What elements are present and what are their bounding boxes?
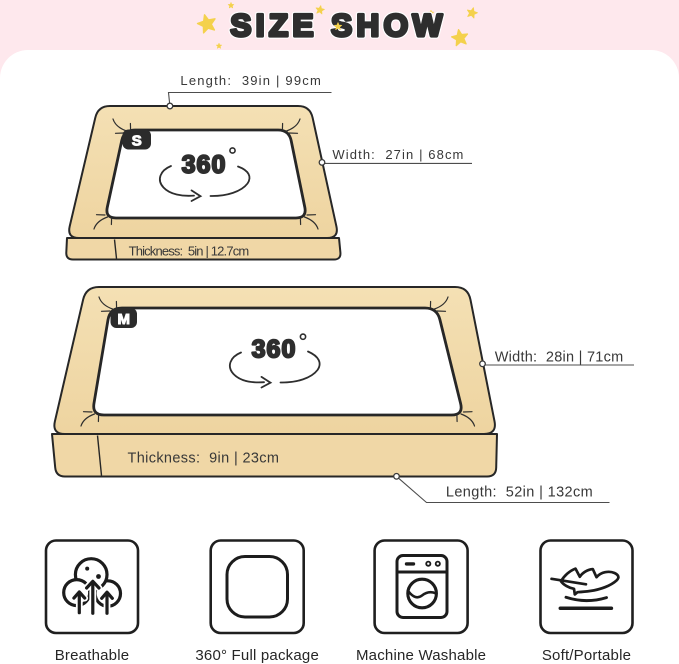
svg-text:360: 360 — [182, 151, 227, 179]
svg-text:Soft/Portable: Soft/Portable — [542, 647, 631, 664]
svg-text:Length: 39in | 99cm: Length: 39in | 99cm — [180, 73, 320, 88]
svg-text:S: S — [132, 133, 142, 150]
svg-text:Machine Washable: Machine Washable — [356, 647, 486, 664]
svg-text:Width: 28in | 71cm: Width: 28in | 71cm — [495, 350, 624, 366]
svg-text:Thickness: 5in | 12.7cm: Thickness: 5in | 12.7cm — [129, 244, 250, 259]
svg-text:360° Full package: 360° Full package — [195, 647, 319, 664]
svg-text:360: 360 — [252, 336, 297, 364]
svg-text:Width: 27in | 68cm: Width: 27in | 68cm — [332, 147, 463, 162]
svg-text:Length: 52in | 132cm: Length: 52in | 132cm — [446, 485, 593, 501]
svg-text:M: M — [118, 311, 131, 328]
svg-text:Thickness: 9in | 23cm: Thickness: 9in | 23cm — [128, 451, 280, 467]
svg-text:Breathable: Breathable — [55, 647, 130, 664]
